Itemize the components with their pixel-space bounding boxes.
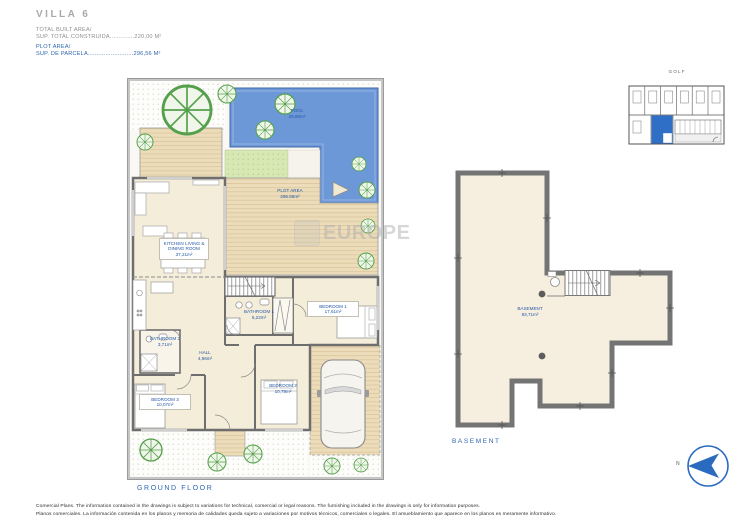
plan-sheet: VILLA 6 TOTAL BUILT AREA/ SUP. TOTAL CON… (0, 0, 756, 528)
site-key-plan: GOLF (626, 70, 728, 154)
car-icon (317, 360, 369, 448)
built-area-block: TOTAL BUILT AREA/ SUP. TOTAL CONSTRUIDA.… (36, 27, 161, 42)
sofa-icon (135, 182, 169, 193)
column-dot (539, 353, 546, 360)
ground-floor-drawing (127, 78, 384, 480)
bedroom1-label: BEDROOM 1 17,61m² (307, 301, 359, 317)
plot-area-label: PLOT AREA/ (36, 44, 161, 51)
kitchen-label: KITCHEN LIVING & DINING ROOM 37,21m² (159, 238, 209, 260)
bedroom2-label: BEDROOM 2 10,78m² (261, 383, 305, 394)
plot-area-plan-label: PLOT AREA 296.56m² (260, 188, 320, 199)
entry-steps (215, 430, 245, 456)
golf-label: GOLF (626, 70, 728, 75)
bedroom3-label: BEDROOM 3 10,07m² (139, 394, 191, 410)
pool-label: POOL 29,80m² (270, 108, 324, 119)
ground-floor-caption: GROUND FLOOR (137, 485, 213, 492)
deck-terrace-left (140, 128, 222, 180)
basement-drawing (440, 158, 690, 448)
built-area-label: TOTAL BUILT AREA/ (36, 27, 161, 34)
disclaimer: Comercial Plans. The information contain… (36, 503, 736, 519)
built-area-value: SUP. TOTAL CONSTRUIDA..............220,0… (36, 34, 161, 41)
north-label: N (676, 461, 680, 467)
plot-area-value: SUP. DE PARCELA.........................… (36, 51, 161, 58)
compass: N (676, 440, 736, 494)
plot-area-block: PLOT AREA/ SUP. DE PARCELA..............… (36, 44, 161, 59)
basement-outline (458, 173, 670, 425)
basement-label: BASEMENT 93,71m² (506, 306, 554, 317)
bathroom2-label: BATHROOM 2 3,71m² (143, 336, 187, 347)
bathroom1-label: BATHROOM 1 5,22m² (237, 309, 281, 320)
site-key-drawing (626, 78, 728, 162)
stairs-icon (225, 277, 275, 296)
disclaimer-line2: Planos comerciales. La información conte… (36, 511, 736, 519)
column-dot (539, 291, 546, 298)
page-title: VILLA 6 (36, 9, 90, 20)
ground-floor-plan: POOL 29,80m² PLOT AREA 296.56m² KITCHEN … (127, 78, 384, 480)
lawn (225, 150, 288, 178)
compass-icon (676, 440, 734, 492)
hall-label: HALL 4,96m² (189, 350, 221, 361)
basement-stairs-icon (565, 270, 610, 296)
disclaimer-line1: Comercial Plans. The information contain… (36, 503, 736, 511)
basement-caption: BASEMENT (452, 438, 501, 445)
basement-plan: BASEMENT 93,71m² (440, 158, 690, 448)
